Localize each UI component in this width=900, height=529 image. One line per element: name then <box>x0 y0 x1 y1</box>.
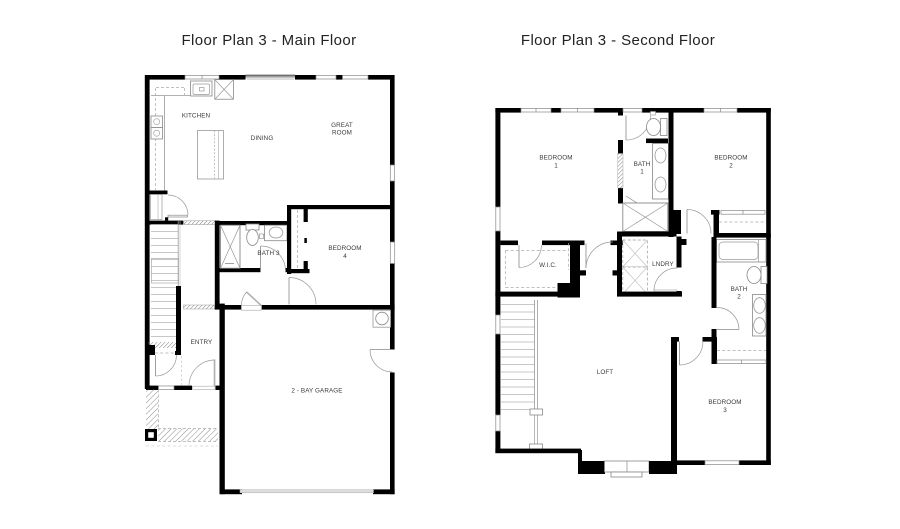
svg-text:1: 1 <box>640 169 644 176</box>
svg-text:BEDROOM: BEDROOM <box>539 155 572 162</box>
svg-text:BATH 3: BATH 3 <box>257 250 280 257</box>
svg-text:Floor Plan 3 - Main Floor: Floor Plan 3 - Main Floor <box>181 32 356 49</box>
svg-text:BATH: BATH <box>731 286 748 293</box>
svg-text:KITCHEN: KITCHEN <box>182 113 211 120</box>
svg-text:ROOM: ROOM <box>332 130 352 137</box>
svg-text:ENTRY: ENTRY <box>191 339 213 346</box>
svg-text:2: 2 <box>737 294 741 301</box>
svg-text:BATH: BATH <box>634 161 651 168</box>
svg-text:1: 1 <box>554 163 558 170</box>
svg-text:BEDROOM: BEDROOM <box>328 245 361 252</box>
svg-text:GREAT: GREAT <box>331 122 353 129</box>
svg-text:3: 3 <box>723 407 727 414</box>
svg-text:BEDROOM: BEDROOM <box>714 155 747 162</box>
svg-text:LOFT: LOFT <box>597 369 614 376</box>
svg-text:2: 2 <box>729 163 733 170</box>
svg-text:LNDRY: LNDRY <box>652 261 674 268</box>
svg-text:DINING: DINING <box>251 135 274 142</box>
svg-text:BEDROOM: BEDROOM <box>708 399 741 406</box>
svg-text:2 - BAY GARAGE: 2 - BAY GARAGE <box>291 388 342 395</box>
svg-text:W.I.C.: W.I.C. <box>539 262 557 269</box>
svg-text:4: 4 <box>343 253 347 260</box>
svg-text:Floor Plan 3 - Second Floor: Floor Plan 3 - Second Floor <box>521 32 715 49</box>
